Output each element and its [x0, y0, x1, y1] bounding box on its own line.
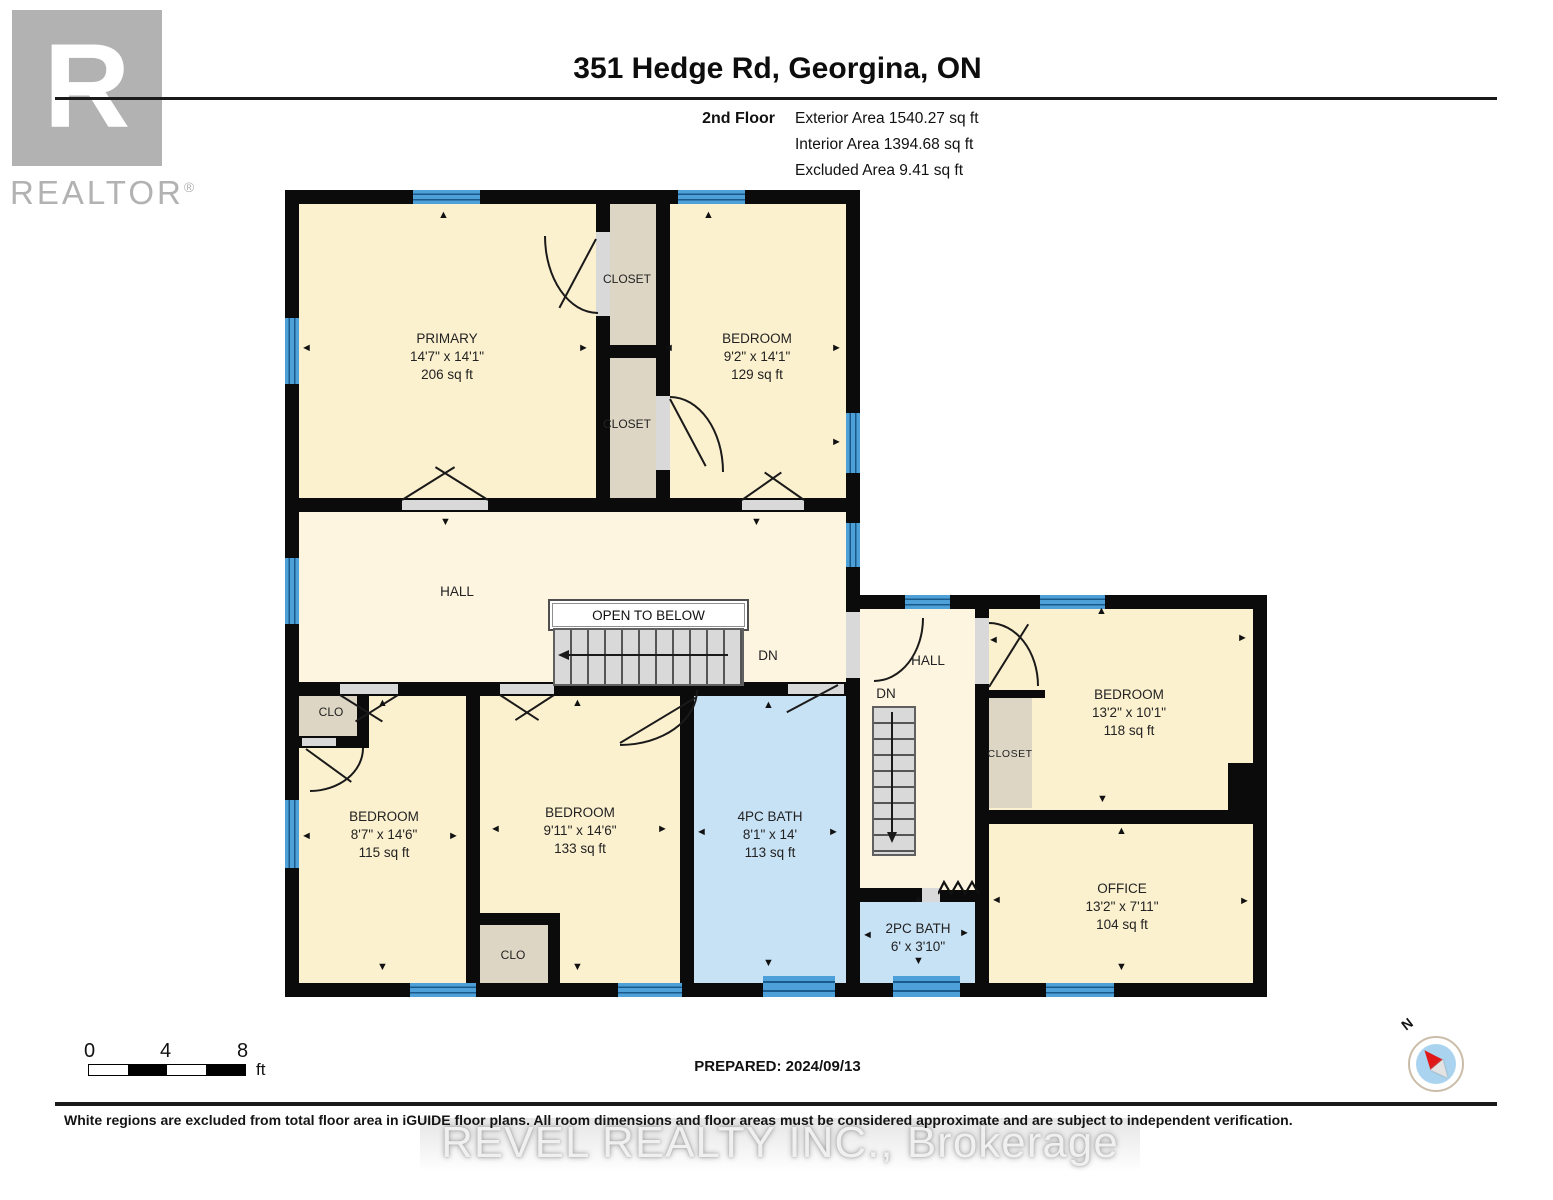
- room-name: CLOSET: [979, 748, 1041, 762]
- sight-arrow-up: ▲: [1116, 826, 1127, 837]
- window: [410, 983, 476, 997]
- sight-arrow-left: ◄: [490, 824, 501, 835]
- window: [285, 558, 299, 624]
- sight-arrow-right: ►: [448, 831, 459, 842]
- sight-arrow-left: ◄: [301, 343, 312, 354]
- realtor-logo: R: [12, 10, 162, 166]
- chimney-notch: [1228, 763, 1253, 810]
- label-primary: PRIMARY 14'7" x 14'1" 206 sq ft: [347, 330, 547, 383]
- label-bedroom-mid: BEDROOM 9'11" x 14'6" 133 sq ft: [480, 804, 680, 857]
- scale-segment: [167, 1065, 206, 1075]
- door-sill: [975, 618, 989, 684]
- sight-arrow-left: ◄: [862, 930, 873, 941]
- interior-area-stat: Interior Area 1394.68 sq ft: [795, 136, 1115, 154]
- disclaimer-text: White regions are excluded from total fl…: [64, 1112, 1484, 1128]
- scale-tick-8: 8: [237, 1040, 248, 1063]
- sight-arrow-right: ►: [578, 343, 589, 354]
- room-dims: 13'2" x 7'11": [1022, 898, 1222, 916]
- room-dims: 13'2" x 10'1": [1029, 704, 1229, 722]
- window: [413, 190, 480, 204]
- sight-arrow-down: ▼: [377, 962, 388, 973]
- realtor-wordmark-text: REALTOR: [10, 174, 184, 211]
- sight-arrow-up: ▲: [913, 894, 924, 905]
- door-sill: [656, 396, 670, 470]
- label-bedroom-top: BEDROOM 9'2" x 14'1" 129 sq ft: [657, 330, 857, 383]
- room-name: CLOSET: [577, 417, 677, 433]
- window: [905, 595, 950, 609]
- registered-mark: ®: [184, 179, 197, 195]
- open-to-below-label: OPEN TO BELOW: [592, 608, 705, 623]
- room-area: 129 sq ft: [657, 366, 857, 384]
- scale-segment: [128, 1065, 167, 1075]
- sight-arrow-down: ▼: [751, 517, 762, 528]
- sight-arrow-up: ▲: [438, 210, 449, 221]
- window: [846, 523, 860, 567]
- window: [1046, 983, 1114, 997]
- door-sill: [846, 612, 860, 678]
- zigzag-partition-icon: [938, 878, 984, 898]
- sight-arrow-down: ▼: [1097, 794, 1108, 805]
- label-closet-mid: CLOSET: [577, 417, 677, 433]
- room-dims: 9'11" x 14'6": [480, 822, 680, 840]
- stairs-dn-label: DN: [866, 685, 906, 703]
- stairs-arrow-icon: [558, 650, 569, 660]
- label-hall-main: HALL: [407, 583, 507, 601]
- window: [763, 976, 835, 997]
- room-name: BEDROOM: [480, 804, 680, 822]
- room-dims: 14'7" x 14'1": [347, 348, 547, 366]
- room-area: 118 sq ft: [1029, 722, 1229, 740]
- label-closet-top: CLOSET: [577, 272, 677, 288]
- window: [893, 976, 960, 997]
- scale-unit: ft: [256, 1060, 265, 1080]
- room-area: 133 sq ft: [480, 840, 680, 858]
- room-area: 115 sq ft: [284, 844, 484, 862]
- sight-arrow-up: ▲: [703, 210, 714, 221]
- compass-north-label: N: [1398, 1015, 1416, 1034]
- label-dn-right: DN: [866, 685, 906, 703]
- room-name: HALL: [878, 652, 978, 670]
- door-sill: [742, 500, 804, 510]
- wall: [480, 913, 556, 925]
- compass-icon: [1408, 1036, 1464, 1092]
- scale-segment: [89, 1065, 128, 1075]
- scale-tick-4: 4: [160, 1040, 171, 1063]
- room-name: CLO: [301, 705, 361, 721]
- realtor-logo-letter: R: [44, 26, 131, 146]
- sight-arrow-up: ▲: [377, 698, 388, 709]
- label-closet-right: CLOSET: [979, 748, 1041, 762]
- sight-arrow-right: ►: [831, 437, 842, 448]
- sight-arrow-right: ►: [828, 827, 839, 838]
- scale-segment: [206, 1065, 245, 1075]
- room-area: 113 sq ft: [670, 844, 870, 862]
- sight-arrow-down: ▼: [1116, 962, 1127, 973]
- room-name: OFFICE: [1022, 880, 1222, 898]
- scale-tick-0: 0: [84, 1040, 95, 1063]
- sight-arrow-left: ◄: [301, 831, 312, 842]
- window: [846, 413, 860, 473]
- sight-arrow-right: ►: [1239, 896, 1250, 907]
- window: [285, 318, 299, 384]
- door-sill: [302, 738, 336, 746]
- door-sill: [500, 684, 554, 694]
- stairs-main: [553, 628, 744, 686]
- footer-divider: [55, 1102, 1497, 1106]
- label-clo-left: CLO: [301, 705, 361, 721]
- window: [678, 190, 745, 204]
- prepared-date: PREPARED: 2024/09/13: [600, 1058, 955, 1075]
- label-clo-bottom: CLO: [483, 948, 543, 964]
- sight-arrow-right: ►: [1237, 633, 1248, 644]
- label-dn-main: DN: [748, 647, 788, 665]
- sight-arrow-up: ▲: [763, 700, 774, 711]
- door-sill: [340, 684, 398, 694]
- sight-arrow-down: ▼: [572, 962, 583, 973]
- sight-arrow-left: ◄: [988, 635, 999, 646]
- stairs-dn-label: DN: [748, 647, 788, 665]
- sight-arrow-down: ▼: [763, 958, 774, 969]
- stairs-direction-line: [566, 654, 728, 656]
- sight-arrow-up: ▲: [572, 698, 583, 709]
- wall: [357, 696, 369, 748]
- open-to-below-box: OPEN TO BELOW: [548, 599, 749, 631]
- exterior-area-stat: Exterior Area 1540.27 sq ft: [795, 110, 1115, 128]
- room-name: 4PC BATH: [670, 808, 870, 826]
- wall: [548, 913, 560, 983]
- sight-arrow-left: ◄: [663, 343, 674, 354]
- sight-arrow-down: ▼: [913, 956, 924, 967]
- floorplan-page: R REALTOR® 351 Hedge Rd, Georgina, ON 2n…: [0, 0, 1553, 1200]
- room-name: BEDROOM: [1029, 686, 1229, 704]
- room-area: 104 sq ft: [1022, 916, 1222, 934]
- sight-arrow-up: ▲: [1096, 606, 1107, 617]
- door-sill: [402, 500, 488, 510]
- label-bedroom-right: BEDROOM 13'2" x 10'1" 118 sq ft: [1029, 686, 1229, 739]
- header-divider: [55, 97, 1497, 100]
- sight-arrow-down: ▼: [440, 517, 451, 528]
- room-name: BEDROOM: [657, 330, 857, 348]
- label-hall-right: HALL: [878, 652, 978, 670]
- sight-arrow-right: ►: [831, 343, 842, 354]
- sight-arrow-left: ◄: [991, 895, 1002, 906]
- room-name: CLOSET: [577, 272, 677, 288]
- realtor-wordmark: REALTOR®: [10, 174, 197, 212]
- sight-arrow-left: ◄: [696, 827, 707, 838]
- wall: [975, 810, 1253, 824]
- window: [618, 983, 682, 997]
- floor-label: 2nd Floor: [600, 110, 775, 128]
- room-name: HALL: [407, 583, 507, 601]
- sight-arrow-right: ►: [959, 928, 970, 939]
- stairs-arrow-icon: [887, 832, 897, 843]
- scale-bar: [88, 1064, 246, 1076]
- page-title: 351 Hedge Rd, Georgina, ON: [370, 52, 1185, 86]
- stairs-direction-line: [891, 712, 893, 834]
- room-name: CLO: [483, 948, 543, 964]
- label-office: OFFICE 13'2" x 7'11" 104 sq ft: [1022, 880, 1222, 933]
- room-area: 206 sq ft: [347, 366, 547, 384]
- sight-arrow-right: ►: [657, 824, 668, 835]
- room-name: PRIMARY: [347, 330, 547, 348]
- room-name: BEDROOM: [284, 808, 484, 826]
- excluded-area-stat: Excluded Area 9.41 sq ft: [795, 162, 1115, 180]
- room-dims: 9'2" x 14'1": [657, 348, 857, 366]
